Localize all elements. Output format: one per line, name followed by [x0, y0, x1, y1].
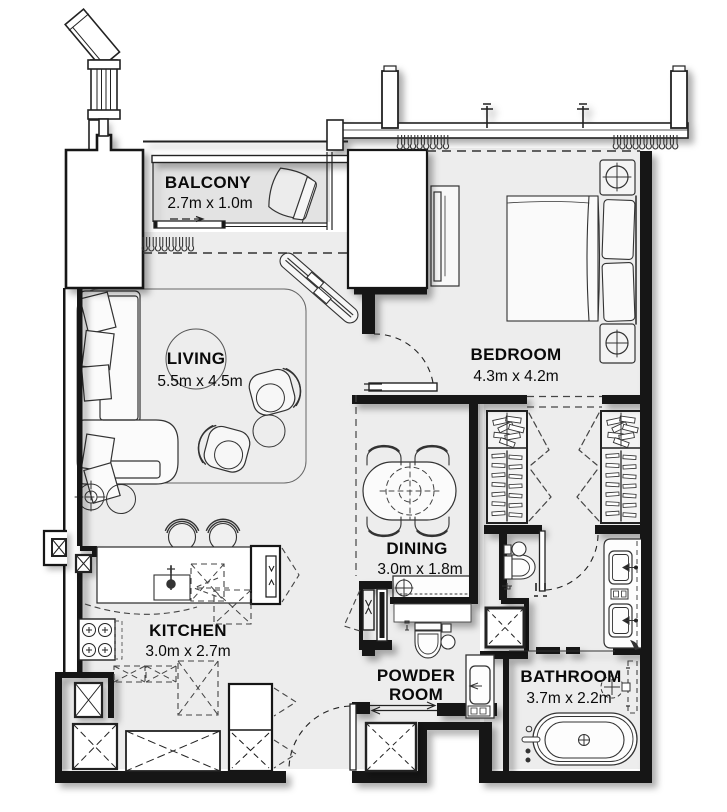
- svg-text:BATHROOM: BATHROOM: [520, 667, 621, 686]
- svg-text:3.0m x 2.7m: 3.0m x 2.7m: [145, 643, 230, 660]
- svg-text:2.7m x 1.0m: 2.7m x 1.0m: [167, 195, 252, 212]
- svg-text:3.0m x 1.8m: 3.0m x 1.8m: [377, 561, 462, 578]
- svg-text:DINING: DINING: [386, 539, 447, 558]
- svg-text:KITCHEN: KITCHEN: [149, 621, 227, 640]
- svg-text:LIVING: LIVING: [167, 349, 225, 368]
- svg-text:4.3m x 4.2m: 4.3m x 4.2m: [473, 368, 558, 385]
- svg-text:BEDROOM: BEDROOM: [471, 345, 562, 364]
- svg-text:BALCONY: BALCONY: [165, 173, 252, 192]
- svg-text:POWDER: POWDER: [377, 666, 455, 685]
- svg-text:ROOM: ROOM: [389, 685, 443, 704]
- svg-text:5.5m x 4.5m: 5.5m x 4.5m: [157, 373, 242, 390]
- svg-text:3.7m x 2.2m: 3.7m x 2.2m: [526, 690, 611, 707]
